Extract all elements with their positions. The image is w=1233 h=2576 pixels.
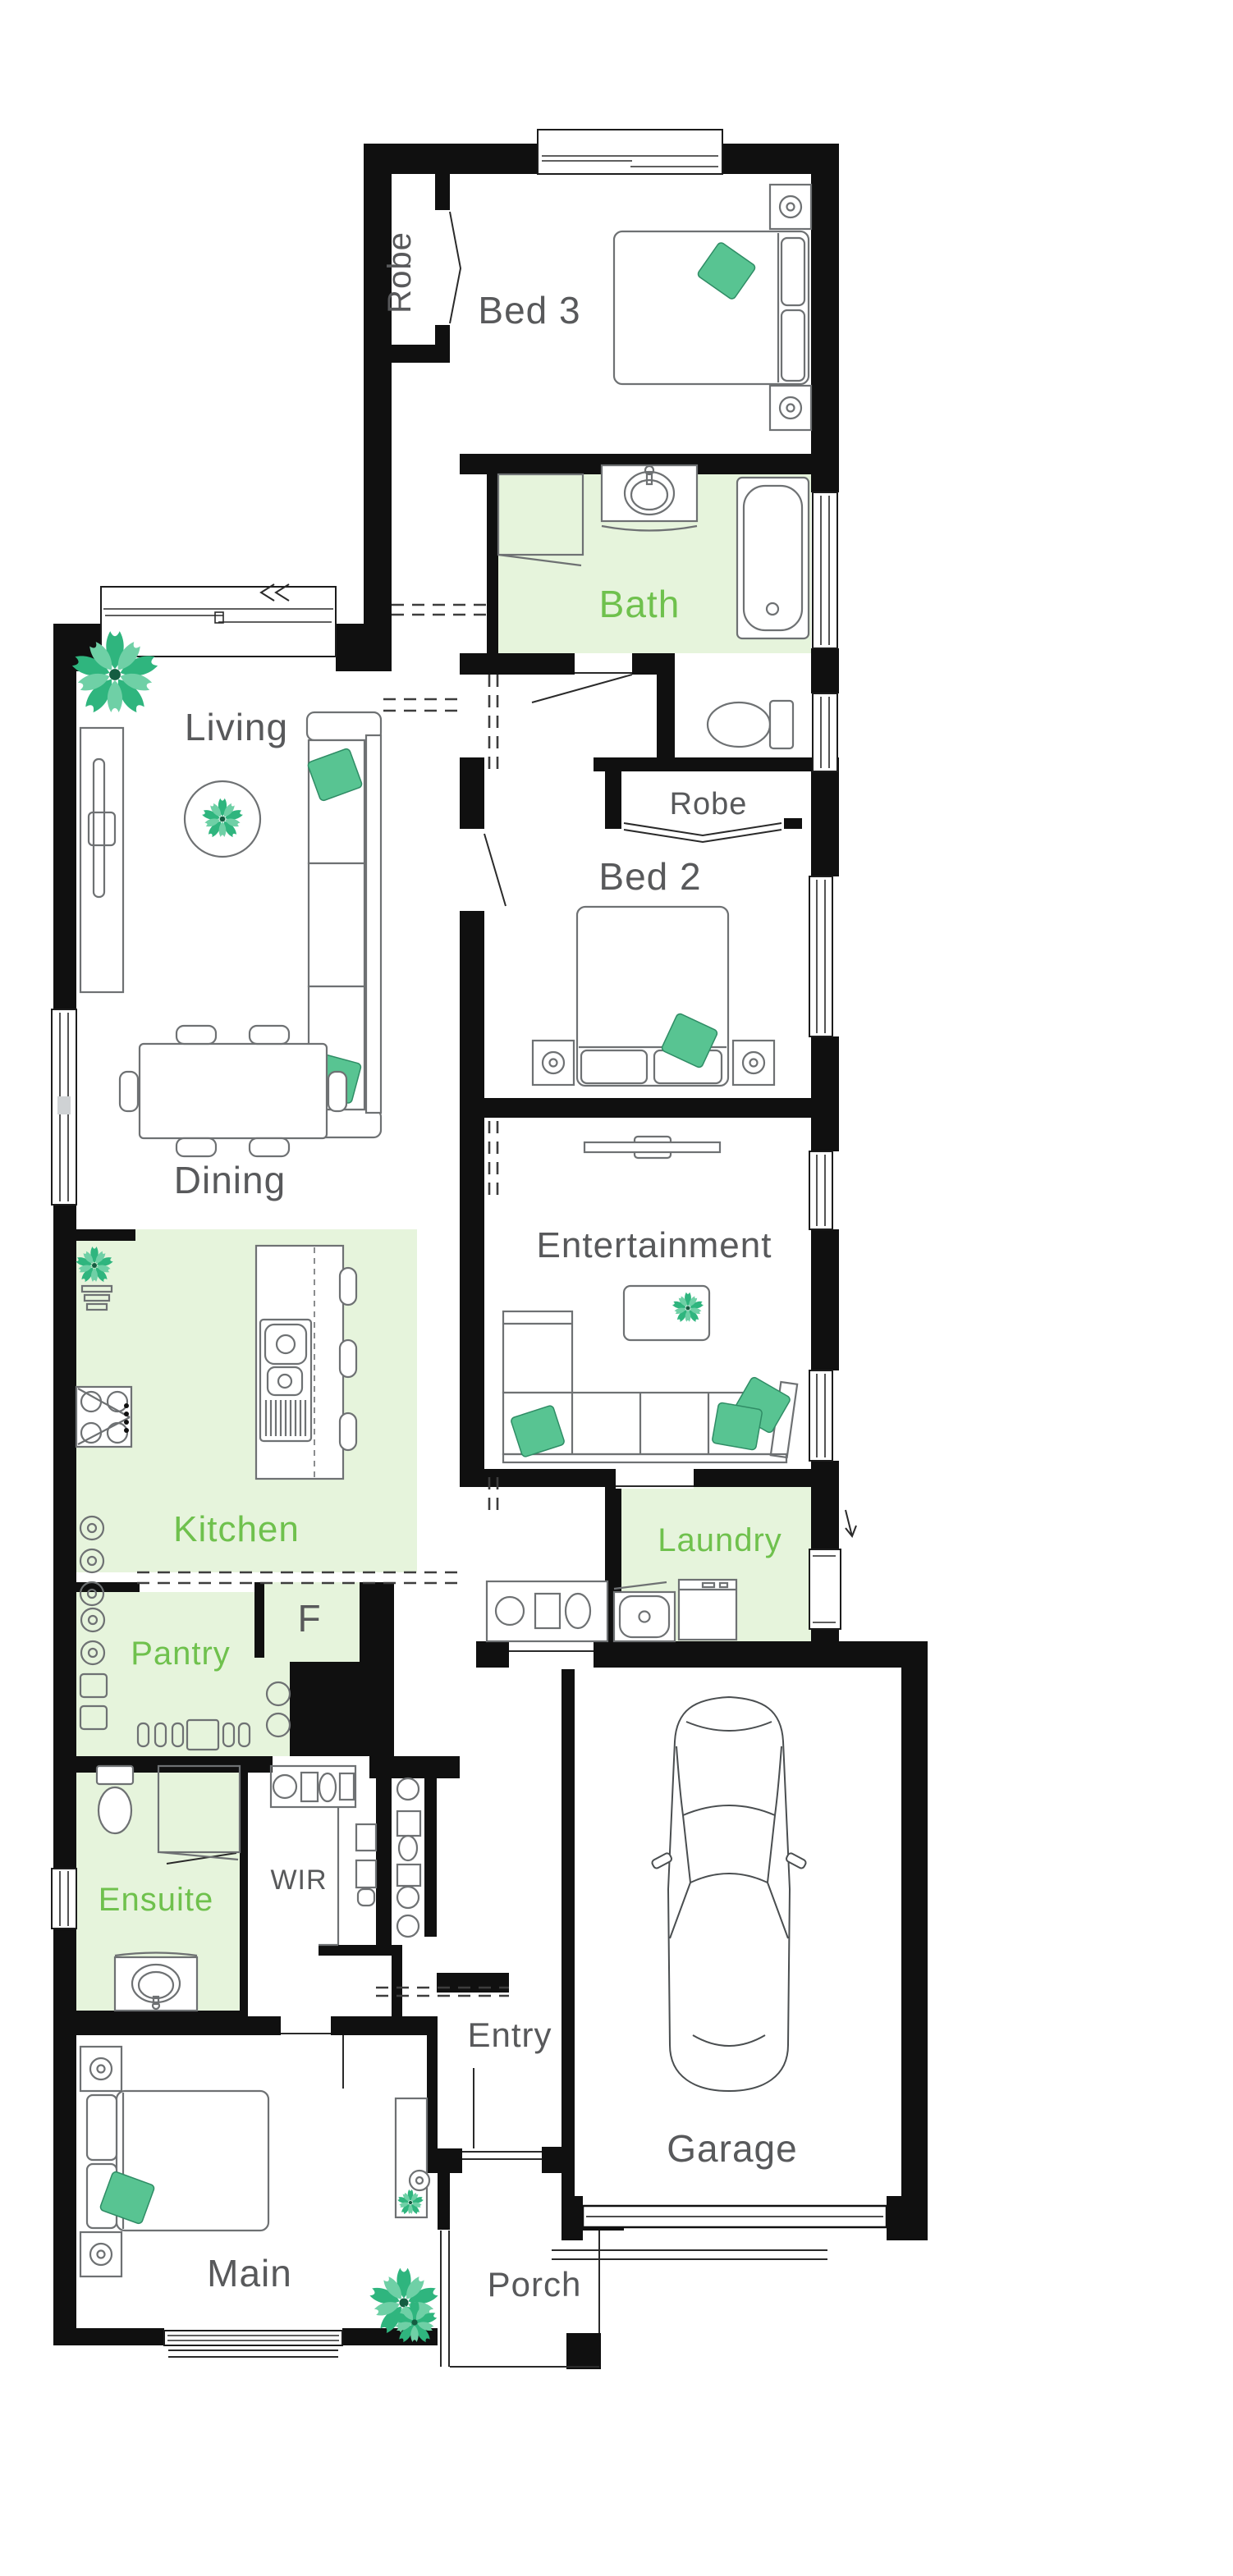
car-icon [651,1697,807,2091]
robe3-label: Robe [382,231,418,313]
entry-label: Entry [467,2016,552,2054]
stool-icon [340,1340,356,1377]
garage-label: Garage [667,2127,797,2170]
cushion-icon [712,1402,763,1451]
robe2-label: Robe [670,787,748,821]
living-label: Living [185,706,288,748]
stool-icon [340,1268,356,1305]
toilet-icon [97,1766,133,1833]
pantry-label: Pantry [131,1636,231,1672]
shelf-symbol-icon [356,1824,376,1851]
kitchen-label: Kitchen [173,1509,300,1549]
chair-icon [250,1138,289,1156]
bathtub-icon [737,478,809,638]
bedside-lamp-icon [770,185,811,229]
washing-machine-icon [679,1580,736,1640]
main-door [281,2034,343,2089]
bed2-room [533,907,774,1086]
chair-icon [328,1072,346,1111]
living-sliding-door [101,587,336,657]
bath-label: Bath [599,583,681,625]
robe3-door [450,212,461,323]
front-door [462,2068,542,2159]
vanity-basin-icon [115,1953,197,2011]
wir-label: WIR [270,1865,327,1896]
garage-room [552,1697,887,2259]
bedside-lamp-icon [733,1041,774,1085]
hall-bench-icon [487,1581,607,1641]
cooktop-icon [76,1387,131,1447]
robe2-bifold-door [624,823,782,842]
floor-plan: Bed 3 Robe Bath Living Robe Bed 2 Dining… [0,0,1233,2576]
pantry-area2 [254,1658,290,1756]
wc-window [813,693,837,771]
main-label: Main [207,2252,292,2295]
bedside-lamp-icon [533,1041,574,1085]
porch-label: Porch [488,2265,582,2304]
dining-window [52,1009,76,1205]
entertainment-room [503,1137,797,1462]
door-swing-arrow-icon [846,1510,856,1536]
bath-window [813,492,837,648]
kitchen-island-icon [256,1246,356,1479]
chair-icon [120,1072,138,1111]
vanity-basin-icon [602,465,697,531]
ensuite-window [52,1869,76,1929]
chair-icon [176,1026,216,1044]
dining-table-icon [140,1044,327,1138]
chair-icon [250,1026,289,1044]
wc-toilet-icon [708,701,793,748]
shelf-symbol-icon [358,1889,374,1906]
entertainment-window-2 [809,1370,832,1461]
plant-icon [397,2189,424,2215]
bed2-door [484,834,506,906]
ensuite-label: Ensuite [99,1882,213,1918]
entertainment-label: Entertainment [537,1225,772,1265]
stool-icon [340,1413,356,1450]
hall-closet-icon [397,1778,420,1937]
shelf-symbol-icon [356,1860,376,1887]
chair-icon [176,1138,216,1156]
laundry-label: Laundry [658,1522,782,1558]
dining-label: Dining [174,1159,286,1201]
bed2-label: Bed 2 [598,855,701,898]
bed3-room [614,185,811,430]
tv-icon [584,1137,720,1158]
garage-door-icon [552,2206,887,2259]
wir-room [271,1766,376,1945]
dining-room [120,1026,346,1156]
wardrobe-shelves-icon [271,1766,355,1807]
bed3-label: Bed 3 [478,289,580,332]
bedside-lamp-icon [80,2047,121,2091]
bed2-window [809,876,832,1036]
bedside-lamp-icon [770,386,811,430]
entertainment-window-1 [809,1151,832,1229]
tv-unit-icon [80,728,123,992]
bed3-window [538,130,722,174]
main-window [164,2331,342,2357]
fridge-label: F [297,1597,321,1640]
bedside-lamp-icon [80,2232,121,2276]
bath-door [532,673,632,702]
